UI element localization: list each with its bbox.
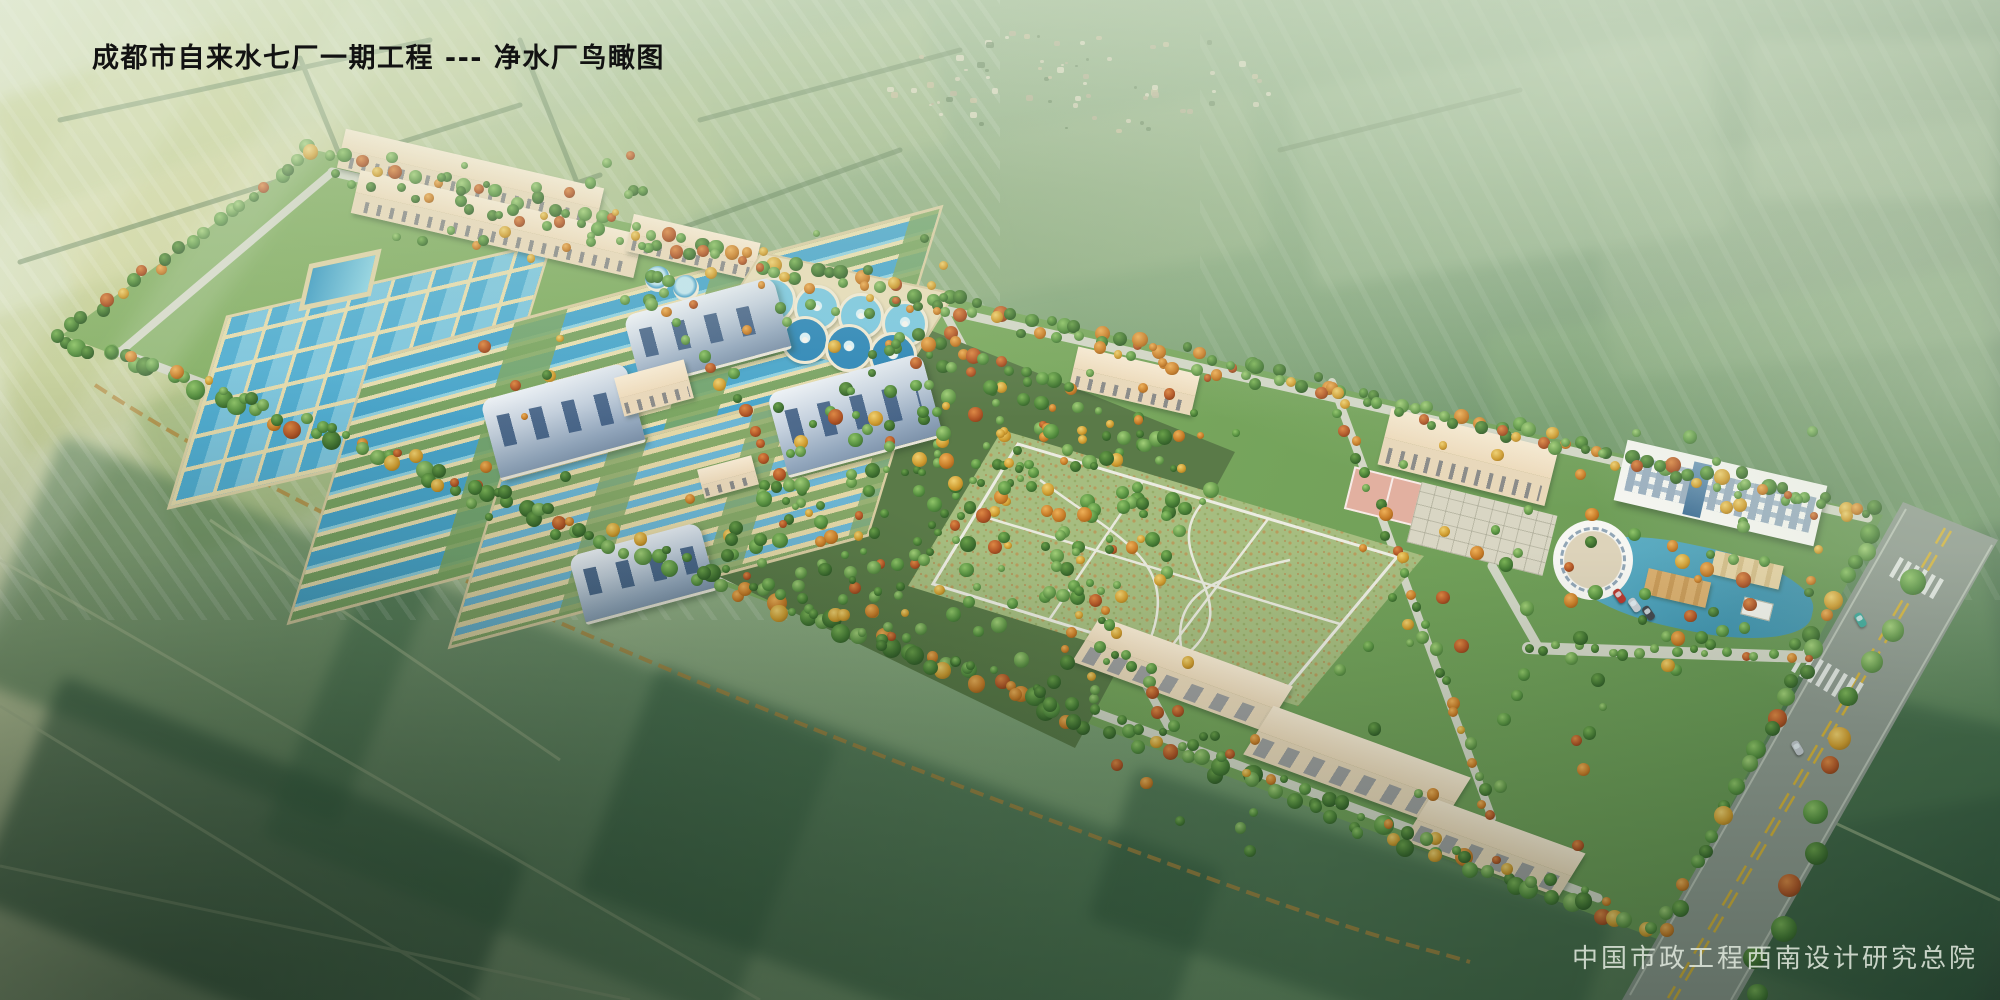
design-institute-credit: 中国市政工程西南设计研究总院 [1572,938,1978,975]
page-title: 成都市自来水七厂一期工程 --- 净水厂鸟瞰图 [92,36,665,75]
aerial-rendering-canvas: 成都市自来水七厂一期工程 --- 净水厂鸟瞰图 中国市政工程西南设计研究总院 [0,0,2000,1000]
vignette-bottom [0,0,2000,1000]
